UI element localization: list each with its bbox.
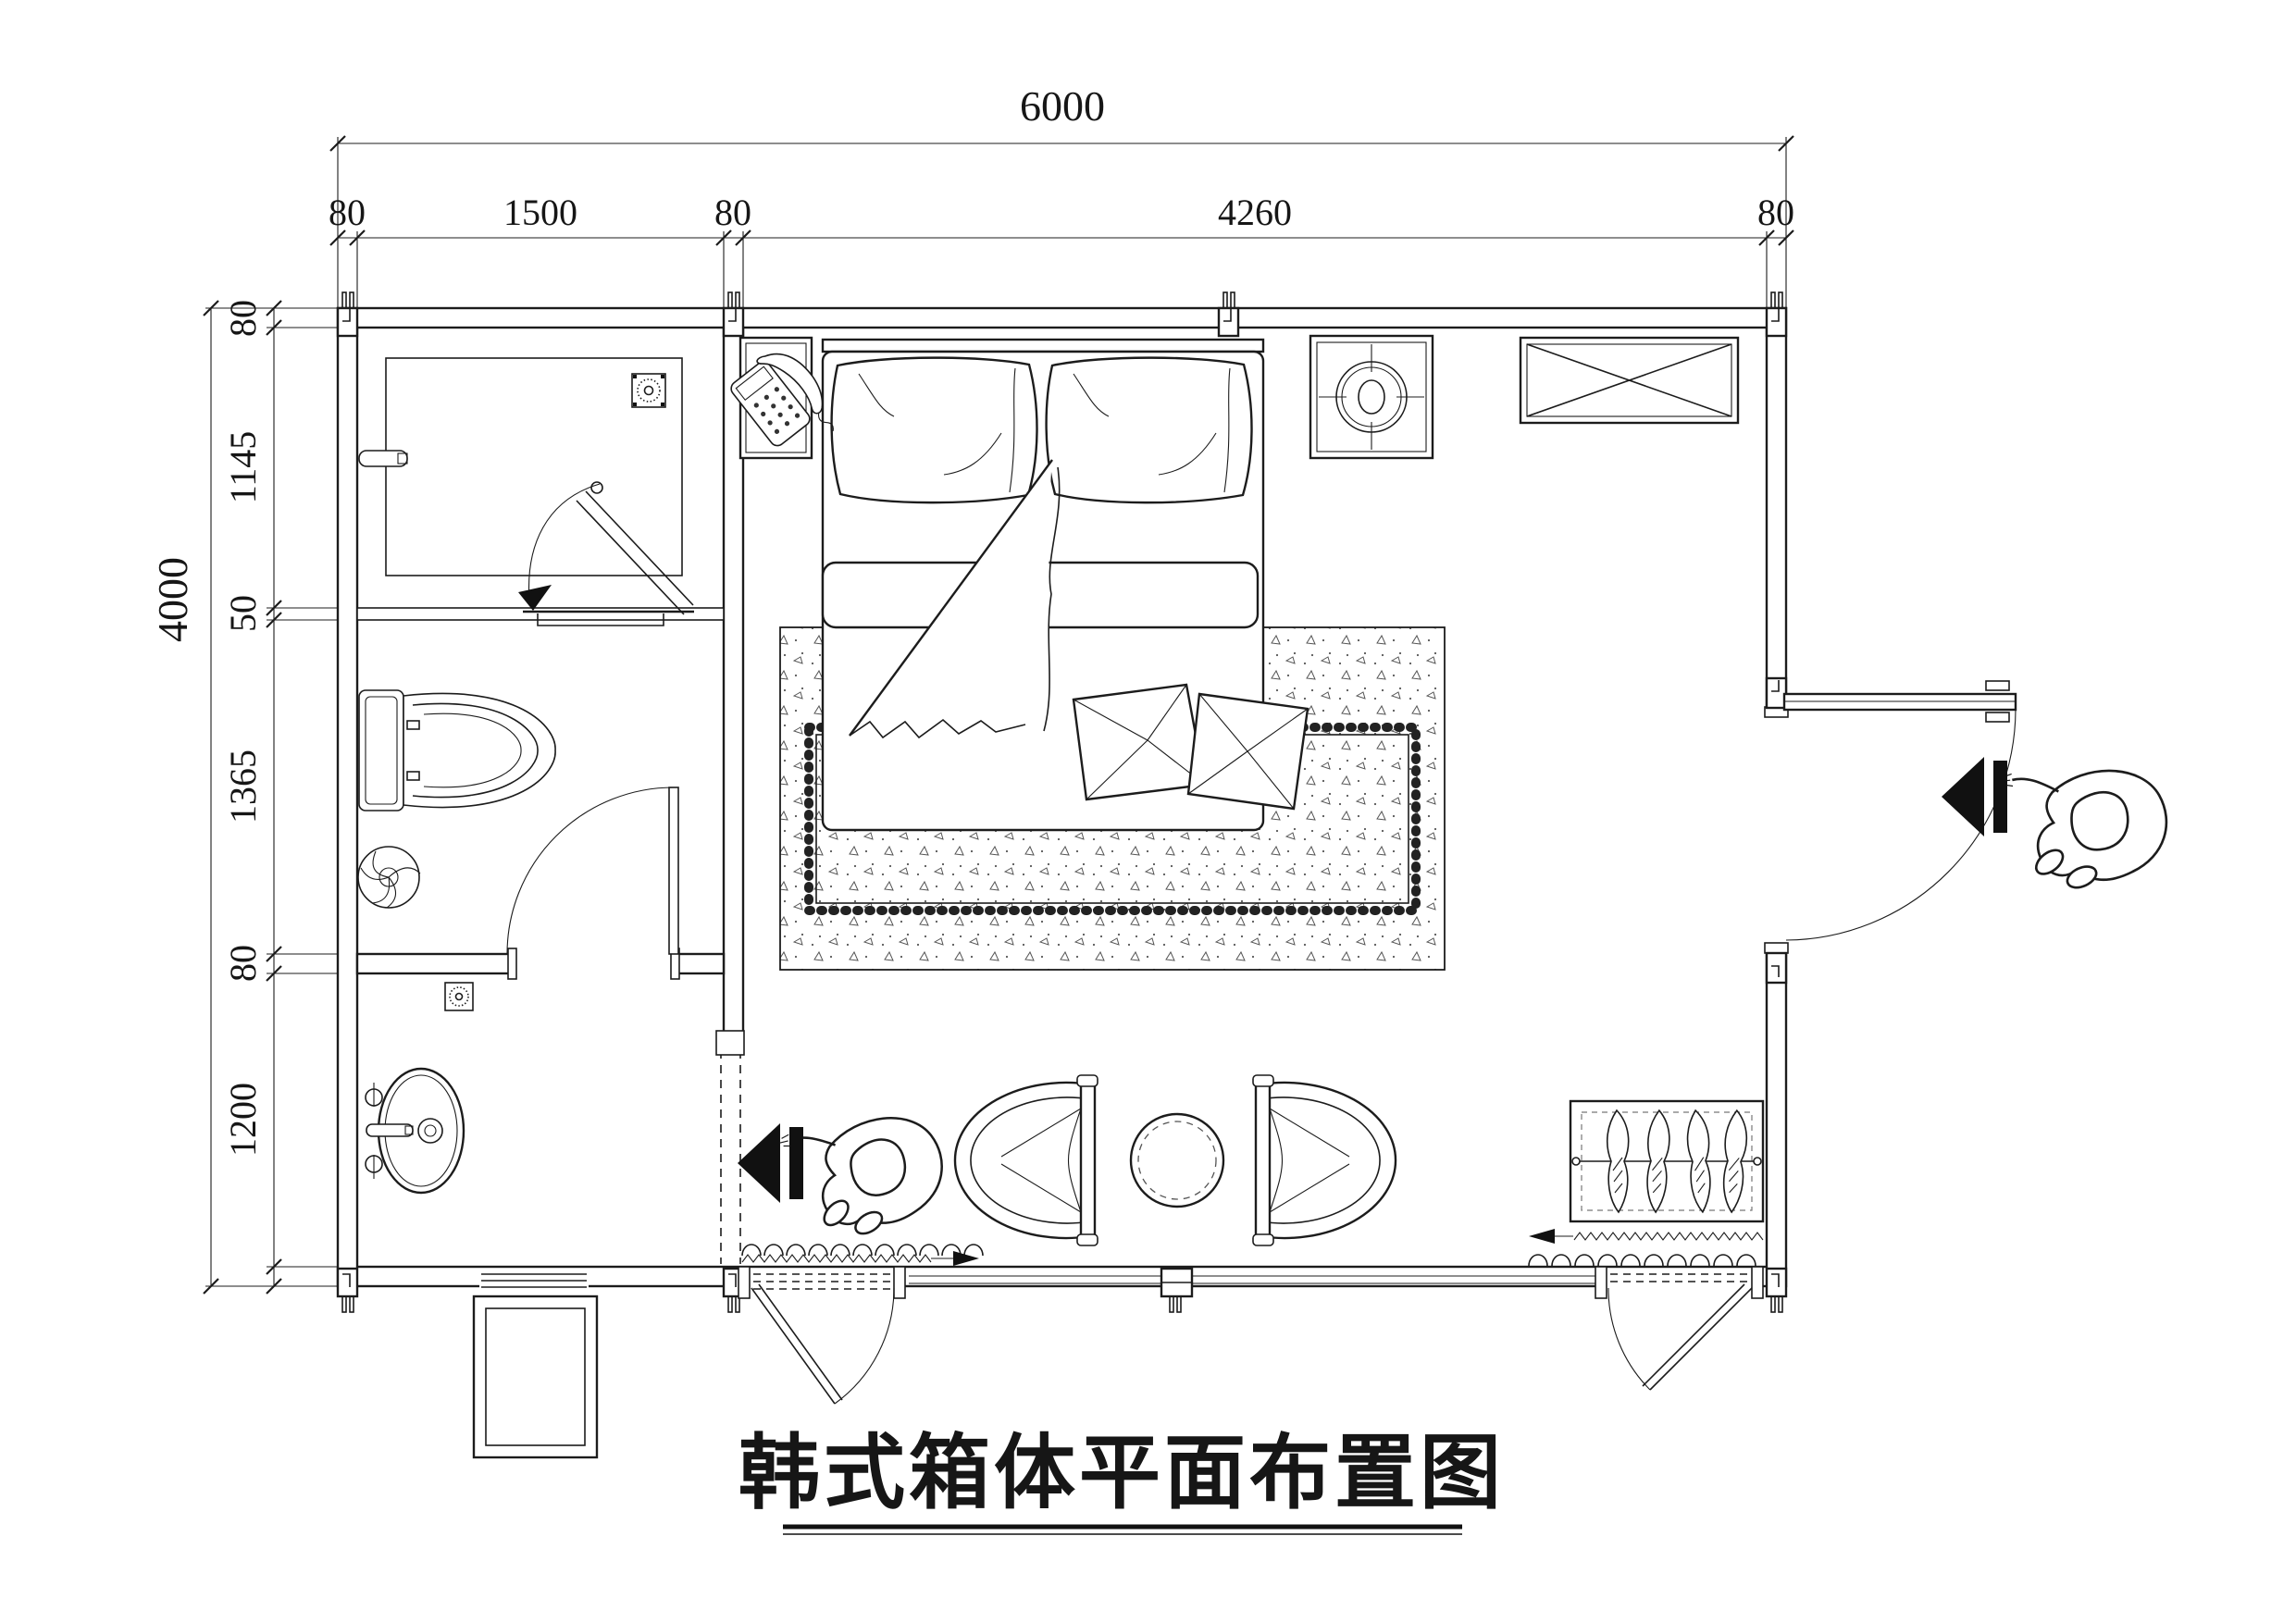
headboard	[823, 340, 1263, 352]
entry-arrow-right	[1942, 757, 2007, 836]
dim-left-1365: 1365	[222, 750, 264, 824]
spiral-drain-icon	[358, 847, 420, 908]
dim-top-80c: 80	[1757, 192, 1794, 233]
floorplan-page: 6000 80 1500 80 4260 80 4000 80 1145	[0, 0, 2296, 1623]
dim-left-80a: 80	[222, 300, 264, 337]
drawing-title-block: 韩式箱体平面布置图	[738, 1427, 1505, 1534]
dim-top-80a: 80	[329, 192, 366, 233]
floorplan-drawing: 6000 80 1500 80 4260 80 4000 80 1145	[0, 0, 2296, 1623]
cushion	[1074, 685, 1205, 799]
dim-left-50: 50	[222, 595, 264, 632]
dim-top-1500: 1500	[503, 192, 577, 233]
dim-left-total: 4000	[149, 557, 196, 642]
person-entering-room	[2001, 759, 2173, 898]
round-table	[1131, 1114, 1223, 1207]
dim-top-4260: 4260	[1218, 192, 1292, 233]
dim-left-1145: 1145	[222, 431, 264, 504]
dim-left-1200: 1200	[222, 1083, 264, 1157]
planter-box	[1570, 1101, 1763, 1221]
double-bed	[823, 340, 1308, 830]
drawing-title: 韩式箱体平面布置图	[738, 1427, 1505, 1518]
exterior-step	[474, 1296, 597, 1457]
dim-top-80b: 80	[714, 192, 751, 233]
dim-top-total: 6000	[1020, 82, 1105, 130]
cabinet	[1520, 338, 1738, 423]
nightstand-right	[1310, 336, 1433, 458]
dim-left-80b: 80	[222, 945, 264, 982]
